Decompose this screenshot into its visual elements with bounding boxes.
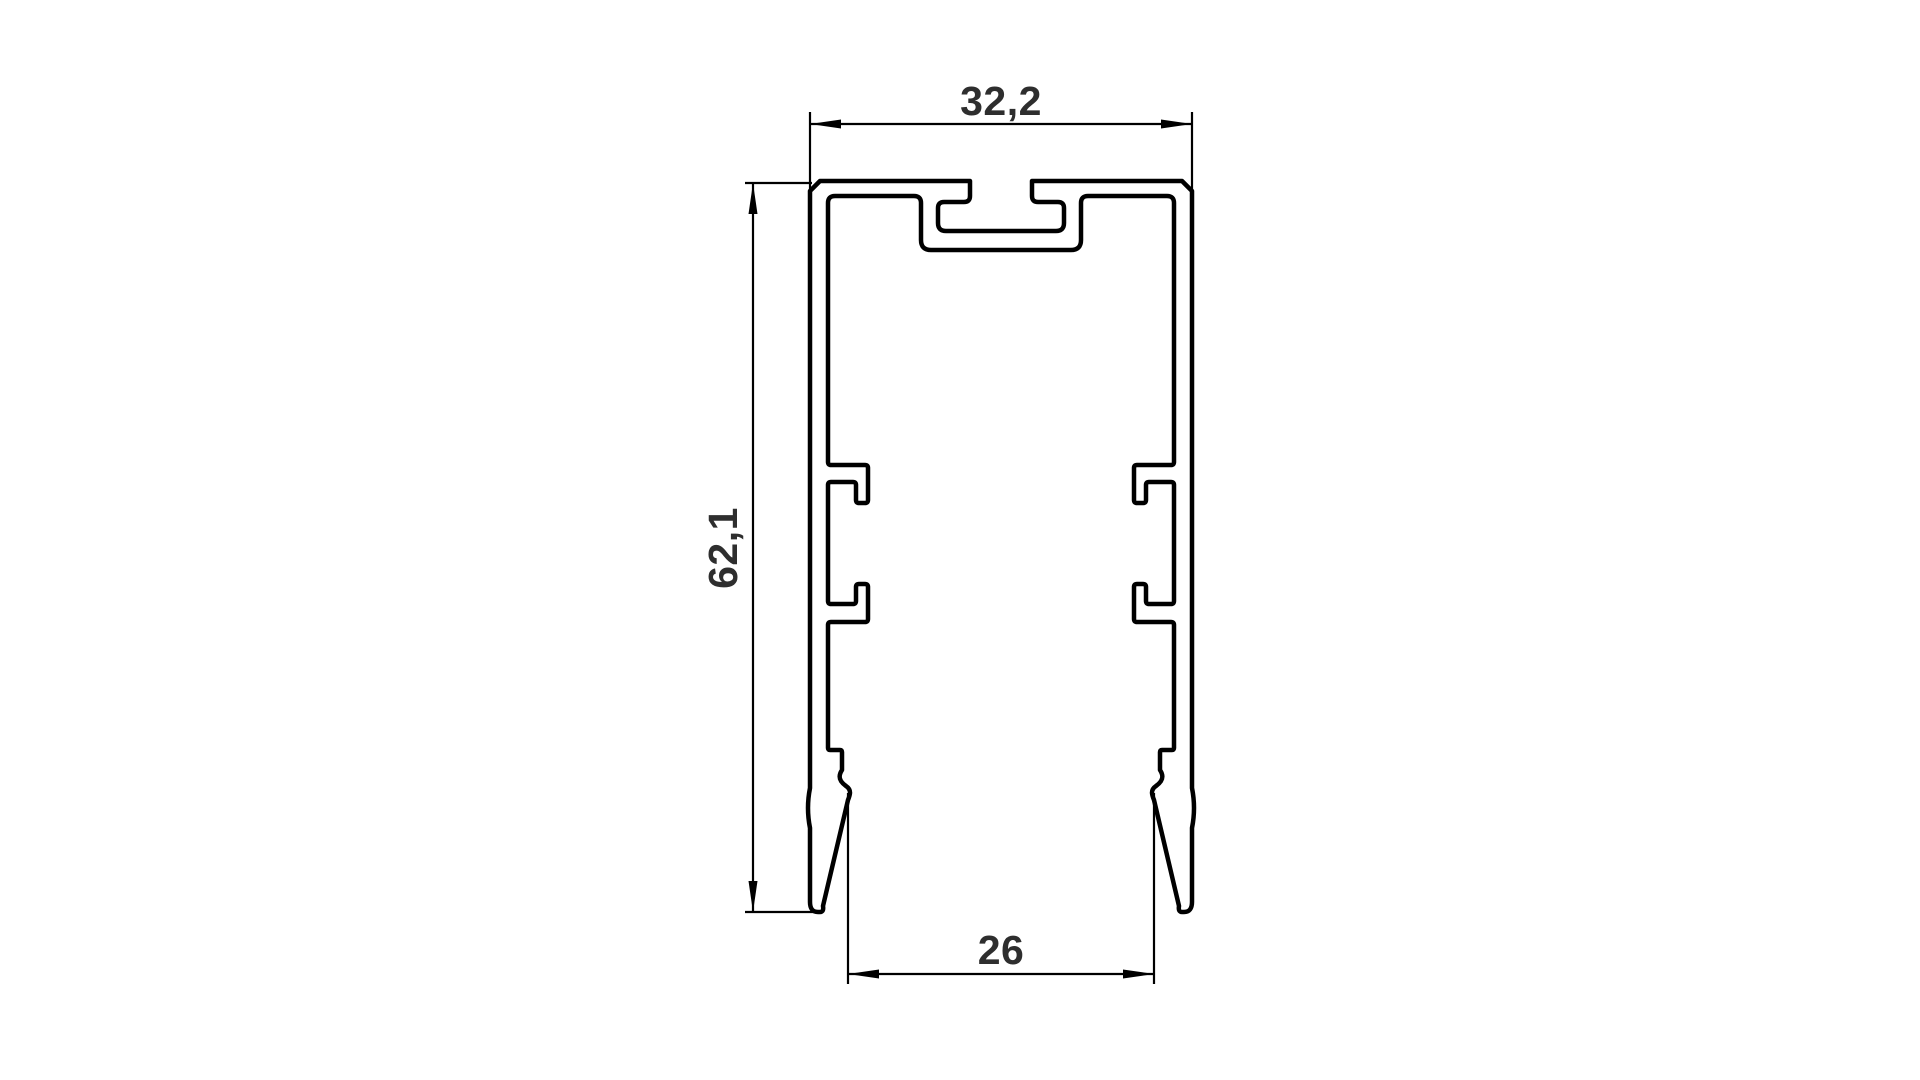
profile-outline [808,181,1194,912]
dim-label-top-width: 32,2 [960,78,1042,124]
dimension-height: 62,1 [700,183,814,912]
arrowhead-right [1123,970,1154,979]
dim-label-bottom-width: 26 [978,927,1025,973]
technical-drawing: 32,2 62,1 26 [0,0,1920,1080]
dim-label-height: 62,1 [700,507,746,589]
arrowhead-left [848,970,879,979]
drawing-canvas: 32,2 62,1 26 [0,0,1920,1080]
arrowhead-left [810,120,841,129]
dimension-bottom-width: 26 [848,793,1154,984]
dimension-top-width: 32,2 [810,78,1192,194]
arrowhead-top [749,183,758,214]
arrowhead-right [1161,120,1192,129]
arrowhead-bottom [749,881,758,912]
